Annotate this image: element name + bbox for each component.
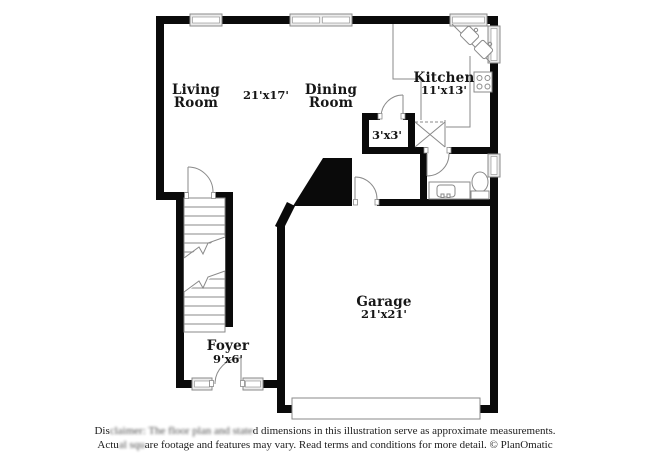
staircase [184, 198, 225, 332]
foyer-dims: 9'x6' [213, 352, 243, 366]
garage-dims: 21'x21' [361, 307, 407, 321]
wall-foyer-south-west [176, 380, 192, 388]
garage-corner-mass [293, 158, 352, 206]
toilet [471, 172, 489, 199]
disclaimer-line1: Disclaimer: The floor plan and stated di… [0, 425, 650, 439]
wall-hall-south [377, 199, 490, 206]
door-garage-entry [355, 177, 377, 199]
powder-room-fixtures [429, 172, 489, 199]
window-top-living [190, 14, 222, 26]
window-entry-left [192, 378, 212, 390]
disclaimer-line1-start: Dis [94, 425, 109, 437]
floorplan-image: Living Room 21'x17' Dining Room Kitchen … [0, 0, 650, 473]
window-top-dining [290, 14, 352, 26]
window-right-powder [488, 154, 500, 177]
vanity-sink [429, 182, 470, 199]
disclaimer-line2-smudged: al squ [119, 439, 145, 451]
wall-garage-west [277, 224, 285, 413]
window-right-kitchen [488, 26, 500, 63]
window-entry-right [243, 378, 263, 390]
living-room-label-line2: Room [174, 95, 218, 111]
wall-stair-east [225, 192, 233, 327]
wall-powder-west [420, 154, 427, 206]
living-room-dims: 21'x17' [243, 88, 289, 102]
wall-diagonal [279, 204, 291, 228]
disclaimer: Disclaimer: The floor plan and stated di… [0, 425, 650, 452]
window-top-kitchen [450, 14, 487, 26]
floorplan-svg: Living Room 21'x17' Dining Room Kitchen … [0, 0, 650, 473]
wall-kitchen-south-west [362, 147, 427, 154]
wall-closet-north-west [362, 113, 380, 120]
wall-left-lower [176, 192, 184, 388]
door-closet [381, 95, 403, 117]
kitchen-dims: 11'x13' [421, 83, 467, 97]
door-powder-room [427, 154, 449, 176]
dining-room-label-line2: Room [309, 95, 353, 111]
closet-dims: 3'x3' [372, 128, 402, 142]
disclaimer-line2: Actual square footage and features may v… [0, 439, 650, 453]
wall-left-upper [156, 16, 164, 200]
kitchen-stove [474, 72, 492, 92]
disclaimer-line1-smudged: claimer: The floor plan and state [110, 425, 253, 437]
door-stairs-top [188, 167, 213, 192]
disclaimer-line2-start: Actu [97, 439, 118, 451]
disclaimer-line1-end: d dimensions in this illustration serve … [253, 425, 556, 437]
garage-vehicle-door [292, 398, 480, 419]
wall-kitchen-south-east [449, 147, 498, 154]
pantry [415, 120, 445, 147]
disclaimer-line2-end: are footage and features may vary. Read … [145, 439, 553, 451]
